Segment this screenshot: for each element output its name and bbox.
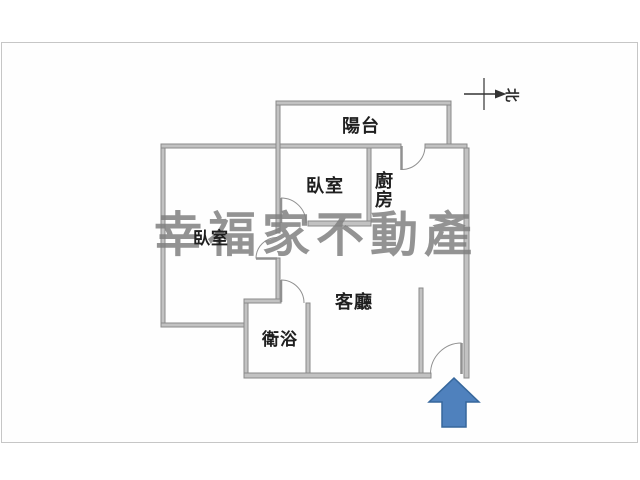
wall-bathroom-top bbox=[244, 299, 281, 303]
floor-plan-image: 幸福家不動產 陽台 臥室 廚房 臥室 客廳 衛浴 北 bbox=[0, 0, 640, 480]
compass bbox=[464, 78, 507, 110]
entrance-arrow-icon bbox=[429, 378, 479, 427]
bathroom-door-arc bbox=[281, 280, 304, 303]
wall-top-right-segment bbox=[425, 144, 467, 148]
wall-balcony-right bbox=[447, 105, 451, 145]
wall-right bbox=[464, 148, 469, 378]
wall-balcony-top bbox=[276, 101, 451, 105]
room-label-kitchen: 廚房 bbox=[374, 172, 394, 210]
kitchen-door-arc bbox=[402, 146, 426, 170]
wall-bottom bbox=[244, 373, 431, 378]
entry-door-arc bbox=[431, 343, 462, 374]
wall-hall-left-lower bbox=[276, 258, 280, 303]
room-label-living-room: 客廳 bbox=[335, 293, 373, 312]
room-label-balcony: 陽台 bbox=[342, 117, 380, 136]
room-label-bedroom-left: 臥室 bbox=[193, 230, 229, 249]
wall-bathroom-right bbox=[306, 303, 310, 378]
wall-bathroom-left bbox=[244, 303, 248, 378]
compass-north-label: 北 bbox=[502, 88, 522, 102]
wall-left-bedroom-bottom bbox=[161, 323, 247, 327]
room-label-bathroom: 衛浴 bbox=[262, 331, 298, 350]
wall-living-partition bbox=[419, 288, 423, 373]
wall-top-left-segment bbox=[161, 144, 401, 148]
room-label-bedroom-main: 臥室 bbox=[306, 177, 344, 196]
